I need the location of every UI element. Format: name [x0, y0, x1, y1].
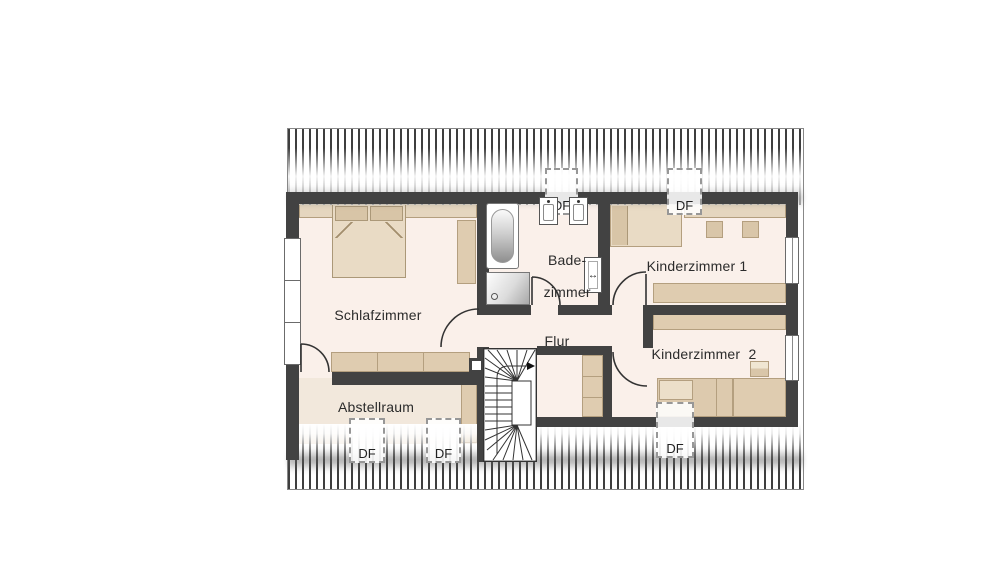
room-label-line: Bade- — [548, 252, 586, 268]
floor-plan: ↔ DF DF DF DF DF — [0, 0, 1000, 563]
door-abstellraum — [301, 344, 329, 372]
door-arcs — [0, 0, 1000, 563]
room-label-kinderzimmer2: Kinderzimmer 2 — [624, 346, 784, 362]
room-label-line: zimmer — [544, 284, 591, 300]
room-label-abstellraum: Abstellraum — [306, 399, 446, 415]
room-label-kinderzimmer1: Kinderzimmer 1 — [617, 258, 777, 274]
room-label-badezimmer: Bade- zimmer — [519, 236, 599, 316]
room-label-flur: Flur — [527, 333, 587, 349]
room-label-schlafzimmer: Schlafzimmer — [308, 307, 448, 323]
door-kinderzimmer1 — [613, 272, 646, 305]
